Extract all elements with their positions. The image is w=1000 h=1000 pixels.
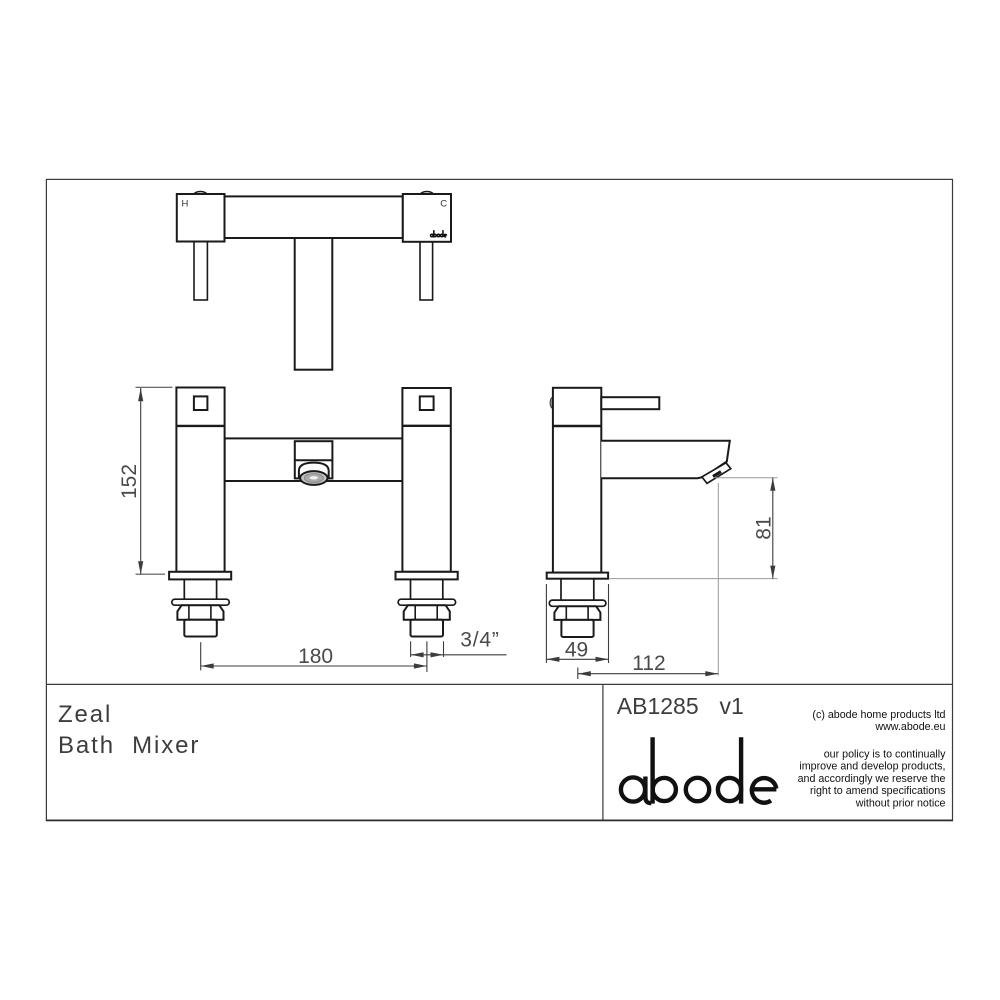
svg-text:(c) abode home products ltd: (c) abode home products ltd	[812, 709, 945, 721]
svg-text:152: 152	[118, 464, 141, 499]
svg-text:Zeal: Zeal	[58, 701, 112, 728]
svg-text:www.abode.eu: www.abode.eu	[874, 721, 945, 733]
svg-text:v1: v1	[720, 693, 744, 719]
svg-text:112: 112	[632, 652, 665, 675]
svg-text:without prior notice: without prior notice	[855, 797, 946, 809]
svg-text:C: C	[440, 199, 447, 210]
svg-text:H: H	[182, 199, 189, 210]
svg-text:Bath Mixer: Bath Mixer	[58, 732, 200, 759]
svg-text:and accordingly we reserve the: and accordingly we reserve the	[798, 773, 946, 785]
svg-text:improve and develop products,: improve and develop products,	[799, 761, 945, 773]
svg-text:49: 49	[565, 639, 588, 662]
svg-text:our policy is to continually: our policy is to continually	[824, 748, 946, 760]
svg-text:180: 180	[298, 645, 333, 668]
svg-text:AB1285: AB1285	[617, 693, 699, 719]
svg-text:right to amend specifications: right to amend specifications	[810, 785, 945, 797]
svg-text:3/4”: 3/4”	[460, 629, 499, 652]
svg-text:81: 81	[753, 516, 776, 539]
